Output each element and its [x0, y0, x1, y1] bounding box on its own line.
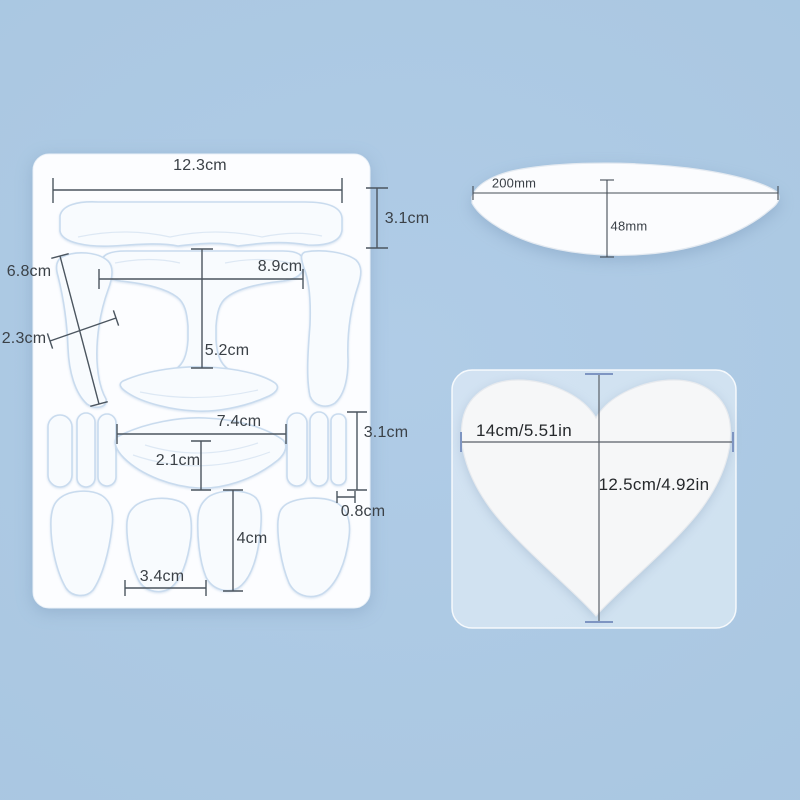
dim-label-eye-strip-width: 0.8cm	[341, 503, 386, 521]
dim-label-side-band-length: 6.8cm	[7, 263, 52, 281]
dim-label-chest-height: 12.5cm/4.92in	[599, 475, 710, 495]
dim-label-cheek-width: 3.4cm	[140, 568, 185, 586]
dim-label-eye-strip-height: 3.1cm	[364, 424, 409, 442]
dim-label-neck-depth: 48mm	[611, 219, 648, 234]
dim-label-tzone-width: 8.9cm	[258, 258, 303, 276]
dim-label-chin-width: 7.4cm	[217, 413, 262, 431]
eye-strip-left-3	[98, 414, 116, 486]
dim-label-neck-width: 200mm	[492, 176, 536, 191]
forehead-patch	[60, 202, 342, 246]
dim-label-side-band-width: 2.3cm	[2, 330, 47, 348]
dim-label-chin-height: 2.1cm	[156, 452, 201, 470]
eye-strip-right-2	[310, 412, 328, 486]
eye-strip-right-3	[331, 414, 346, 485]
eye-strip-right-1	[287, 413, 307, 486]
eye-strip-left-2	[77, 413, 95, 487]
dim-label-tzone-height: 5.2cm	[205, 342, 250, 360]
dim-label-forehead-height: 3.1cm	[385, 210, 430, 228]
eye-strip-left-1	[48, 415, 72, 487]
dim-label-chest-width: 14cm/5.51in	[476, 421, 572, 441]
dim-label-cheek-height: 4cm	[237, 530, 268, 548]
dim-label-forehead-width: 12.3cm	[173, 157, 227, 175]
scene-graphics	[0, 0, 800, 800]
product-dimension-image: 12.3cm 3.1cm 6.8cm 2.3cm 8.9cm 5.2cm 7.4…	[0, 0, 800, 800]
